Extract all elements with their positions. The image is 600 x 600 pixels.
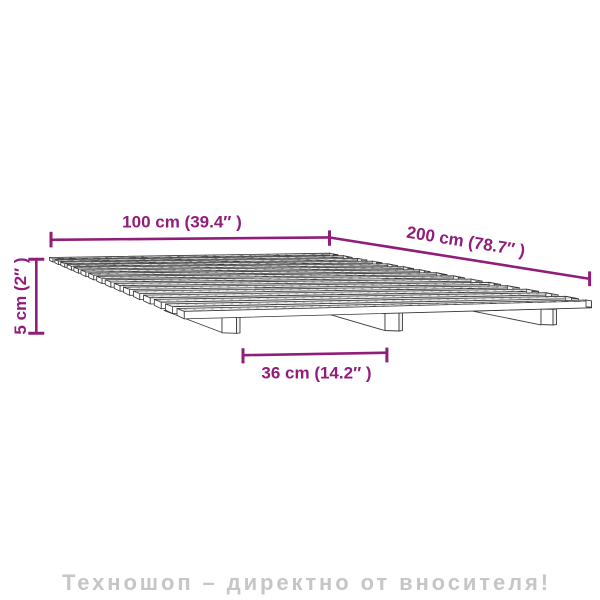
svg-text:100 cm (39.4″ ): 100 cm (39.4″ ) <box>122 213 242 232</box>
svg-text:5 cm (2″ ): 5 cm (2″ ) <box>11 257 30 334</box>
svg-text:36 cm (14.2″ ): 36 cm (14.2″ ) <box>261 364 371 383</box>
svg-text:Техношоп – директно от вносите: Техношоп – директно от вносителя! <box>62 570 551 595</box>
